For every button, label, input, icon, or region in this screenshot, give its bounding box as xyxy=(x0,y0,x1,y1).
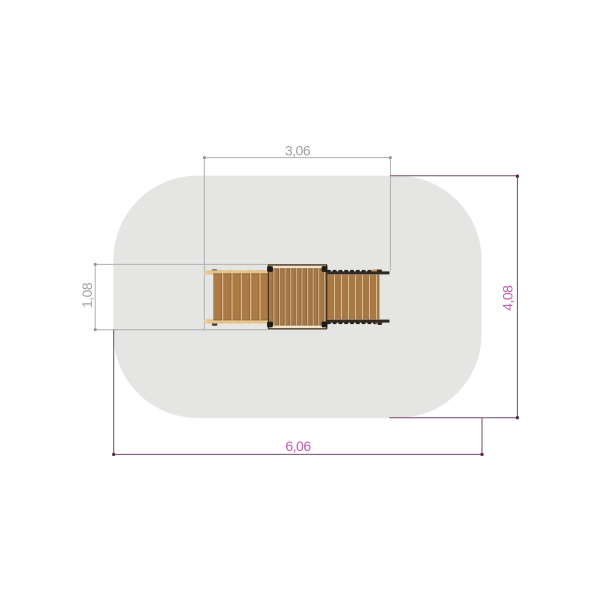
svg-text:1,08: 1,08 xyxy=(79,282,95,308)
svg-text:6,06: 6,06 xyxy=(285,438,311,454)
svg-text:3,06: 3,06 xyxy=(285,143,311,159)
svg-text:4,08: 4,08 xyxy=(499,285,515,311)
